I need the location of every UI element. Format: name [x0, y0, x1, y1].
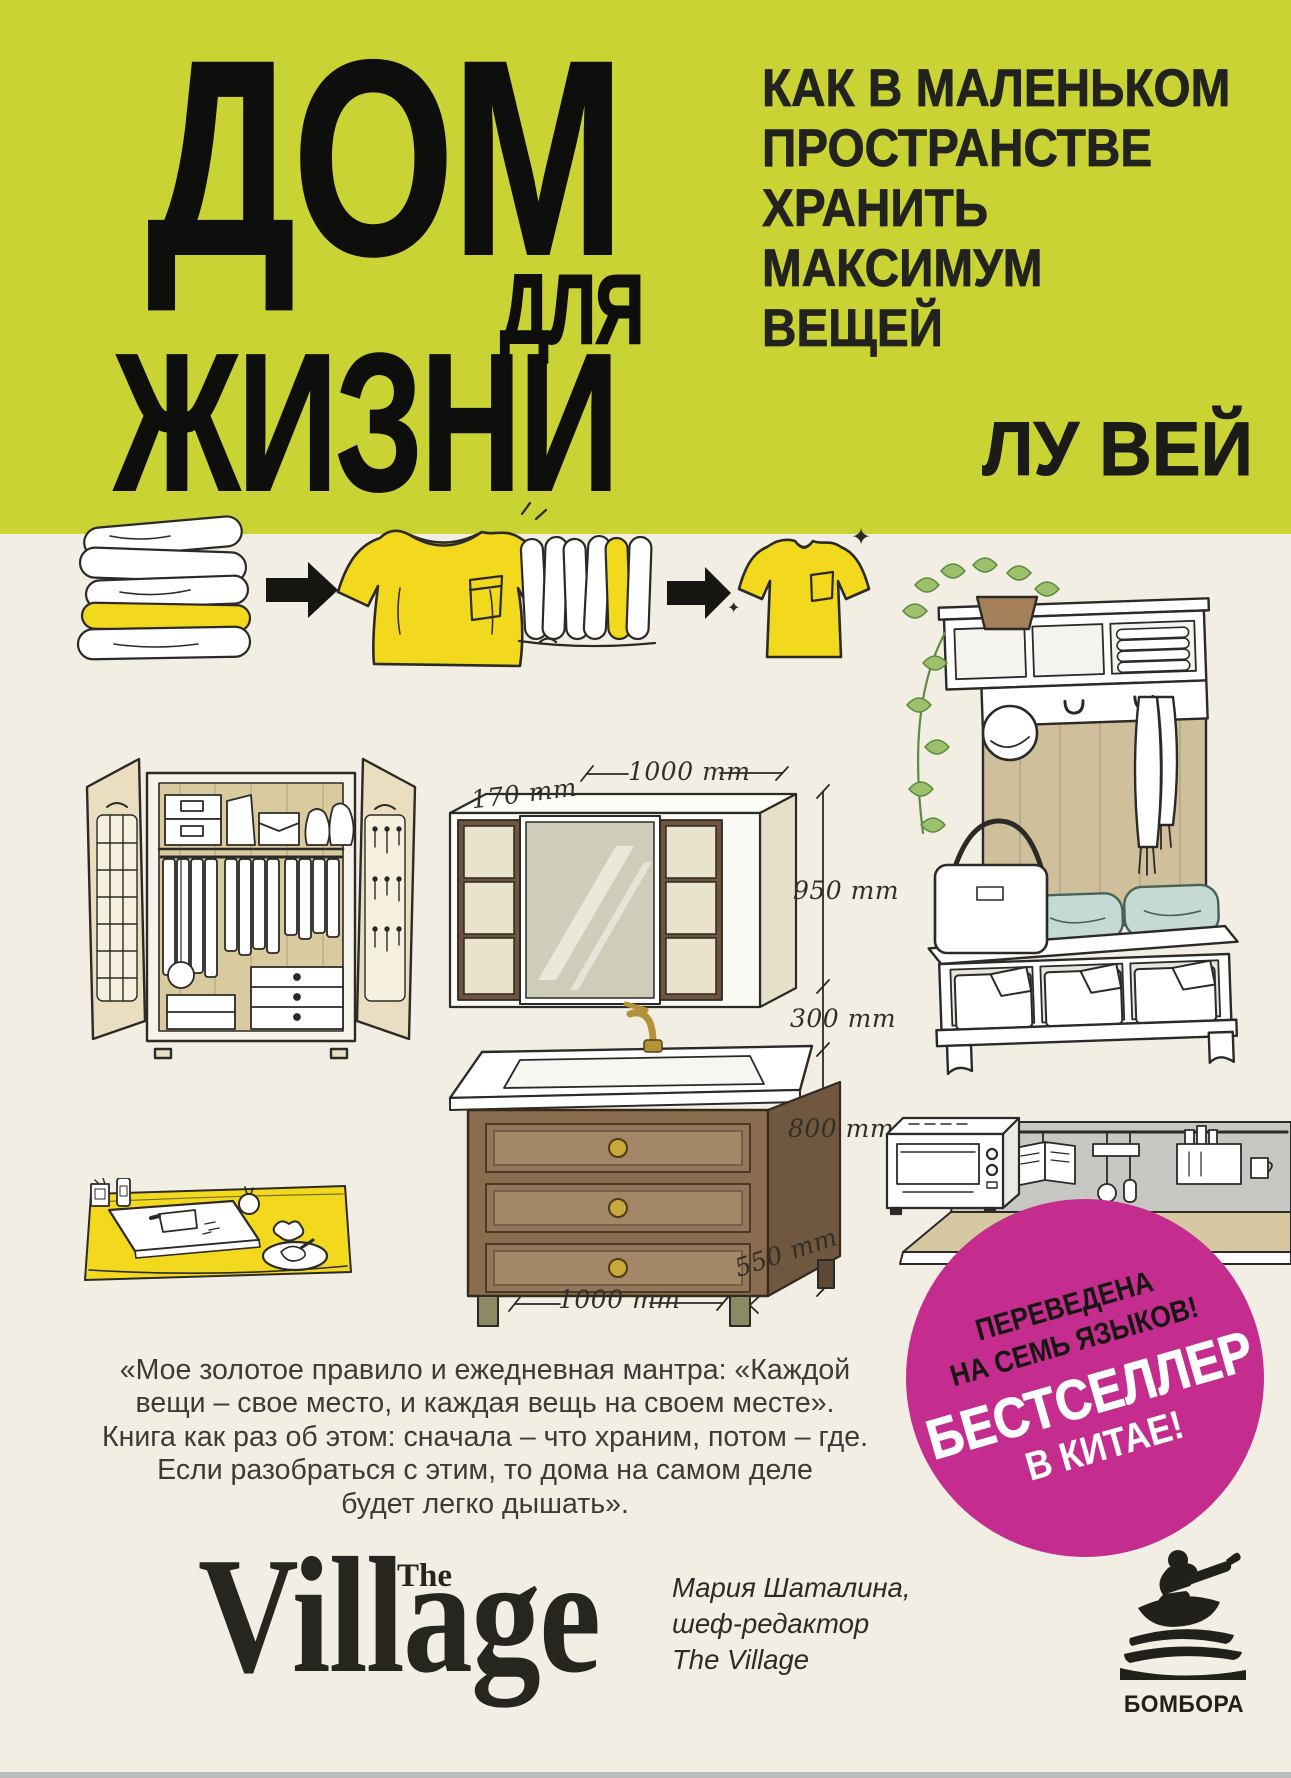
sparkle-icon: ✦ — [727, 600, 740, 617]
subtitle-line: КАК В МАЛЕНЬКОМ — [762, 59, 1230, 119]
quote-line: Если разобраться с этим, то дома на само… — [50, 1454, 920, 1487]
publisher-name: БОМБОРА — [1112, 1691, 1256, 1719]
subtitle-line: ПРОСТРАНСТВЕ — [762, 119, 1230, 179]
jewelry-organizer — [365, 805, 405, 1001]
arrow-right-icon — [266, 562, 338, 618]
file-folded-stack — [519, 535, 655, 646]
page-edge — [0, 1772, 1291, 1778]
vanity-cabinet — [450, 1004, 840, 1326]
endorsement-quote: «Мое золотое правило и ежедневная мантра… — [50, 1354, 920, 1521]
subtitle-line: ВЕЩЕЙ — [762, 299, 1230, 359]
faucet — [626, 1004, 662, 1052]
dimension-label-width-top: 1000 mm — [628, 757, 750, 786]
hat — [983, 706, 1037, 760]
hallway-bench-illustration — [795, 545, 1245, 1080]
the-village-logo: Village The — [190, 1528, 750, 1733]
subtitle-line: ХРАНИТЬ — [762, 179, 1230, 239]
endorser-role: шеф-редактор — [672, 1606, 911, 1642]
messy-clothes-pile — [78, 515, 250, 659]
author-name: ЛУ ВЕЙ — [982, 406, 1253, 493]
title-band: ДОМ ДЛЯ ЖИЗНИ КАК В МАЛЕНЬКОМ ПРОСТРАНСТ… — [0, 0, 1291, 534]
subtitle: КАК В МАЛЕНЬКОМ ПРОСТРАНСТВЕ ХРАНИТЬ МАК… — [762, 59, 1230, 359]
dimension-label-width-bottom: 1000 mm — [558, 1285, 680, 1314]
endorser-organization: The Village — [672, 1642, 911, 1678]
folded-linens — [1116, 627, 1189, 672]
village-logo-the: The — [397, 1558, 452, 1595]
pocket-organizer — [97, 803, 137, 1001]
endorser-name: Мария Шаталина, — [672, 1570, 911, 1606]
book-cover: ДОМ ДЛЯ ЖИЗНИ КАК В МАЛЕНЬКОМ ПРОСТРАНСТ… — [0, 0, 1291, 1778]
interior-drawers — [251, 967, 343, 1029]
toaster-oven — [887, 1118, 1019, 1214]
quote-line: вещи – свое место, и каждая вещь на свое… — [50, 1387, 920, 1420]
quote-line: «Мое золотое правило и ежедневная мантра… — [50, 1354, 920, 1387]
village-logo-wordmark: Village — [198, 1528, 599, 1704]
food-prep-illustration — [83, 1178, 358, 1290]
wardrobe-illustration — [85, 753, 417, 1061]
mirror-cabinet — [450, 794, 796, 1007]
bombora-surfer-icon — [1108, 1544, 1260, 1680]
publisher-logo: БОМБОРА — [1108, 1544, 1260, 1719]
subtitle-line: МАКСИМУМ — [762, 239, 1230, 299]
sauce-bottle — [117, 1178, 130, 1206]
title-word-zhizni: ЖИЗНИ — [114, 325, 617, 521]
salt-box — [91, 1178, 109, 1206]
quote-line: будет легко дышать». — [50, 1488, 920, 1521]
quote-line: Книга как раз об этом: сначала – что хра… — [50, 1421, 920, 1454]
vanity-drawers — [486, 1124, 750, 1292]
endorsement-attribution: Мария Шаталина, шеф-редактор The Village — [672, 1570, 911, 1678]
bestseller-badge: ПЕРЕВЕДЕНА НА СЕМЬ ЯЗЫКОВ! БЕСТСЕЛЛЕР В … — [906, 1199, 1264, 1557]
sink — [504, 1056, 764, 1088]
arrow-right-icon — [667, 567, 731, 619]
